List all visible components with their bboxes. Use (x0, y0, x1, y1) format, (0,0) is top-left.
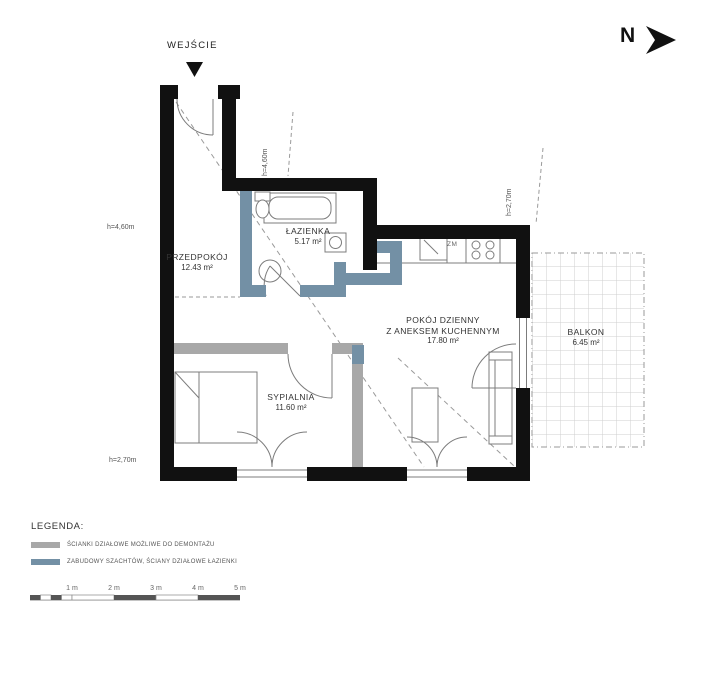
room-name-line2: Z ANEKSEM KUCHENNYM (386, 326, 500, 337)
room-label-living-room: POKÓJ DZIENNY Z ANEKSEM KUCHENNYM 17.80 … (386, 315, 500, 346)
floor-plan-page: WEJŚCIE N PRZEDPOKÓJ 12.43 m² ŁAZIENKA 5… (0, 0, 704, 685)
room-area: 12.43 m² (152, 263, 242, 273)
scale-label-2m: 2 m (102, 585, 126, 592)
room-area: 6.45 m² (556, 338, 616, 348)
room-label-bedroom: SYPIALNIA 11.60 m² (256, 392, 326, 413)
north-label: N (620, 24, 635, 48)
room-label-hallway: PRZEDPOKÓJ 12.43 m² (152, 252, 242, 273)
dishwasher-label: ZM (447, 241, 457, 248)
height-label-kitchen-wall: h=2,70m (506, 154, 516, 216)
legend-item-label: ŚCIANKI DZIAŁOWE MOŻLIWE DO DEMONTAŻU (67, 542, 215, 548)
legend-item: ZABUDOWY SZACHTÓW, ŚCIANY DZIAŁOWE ŁAZIE… (31, 559, 237, 565)
height-label-hallway: h=4,60m (107, 224, 134, 231)
height-label-bedroom-wall: h=2,70m (109, 457, 136, 464)
scale-label-1m: 1 m (60, 585, 84, 592)
room-area: 17.80 m² (386, 336, 500, 346)
legend-item-label: ZABUDOWY SZACHTÓW, ŚCIANY DZIAŁOWE ŁAZIE… (67, 559, 237, 565)
room-area: 11.60 m² (256, 403, 326, 413)
room-name: POKÓJ DZIENNY (386, 315, 500, 326)
room-name: BALKON (556, 327, 616, 338)
room-label-bathroom: ŁAZIENKA 5.17 m² (268, 226, 348, 247)
room-name: ŁAZIENKA (268, 226, 348, 237)
scale-bar (30, 595, 240, 600)
scale-label-3m: 3 m (144, 585, 168, 592)
legend-swatch-gray (31, 542, 60, 548)
room-label-balcony: BALKON 6.45 m² (556, 327, 616, 348)
entrance-arrow-icon (186, 62, 203, 77)
north-arrow-icon (646, 26, 676, 54)
scale-label-4m: 4 m (186, 585, 210, 592)
entrance-label: WEJŚCIE (167, 40, 218, 51)
legend-swatch-blue (31, 559, 60, 565)
legend-item: ŚCIANKI DZIAŁOWE MOŻLIWE DO DEMONTAŻU (31, 542, 237, 548)
furniture (175, 352, 512, 444)
balcony-area (532, 253, 644, 447)
height-label-bathroom-wall: h=4,60m (262, 114, 272, 176)
room-area: 5.17 m² (268, 237, 348, 247)
scale-label-5m: 5 m (228, 585, 252, 592)
legend: LEGENDA: ŚCIANKI DZIAŁOWE MOŻLIWE DO DEM… (31, 521, 237, 576)
room-name: SYPIALNIA (256, 392, 326, 403)
legend-title: LEGENDA: (31, 521, 237, 532)
room-name: PRZEDPOKÓJ (152, 252, 242, 263)
